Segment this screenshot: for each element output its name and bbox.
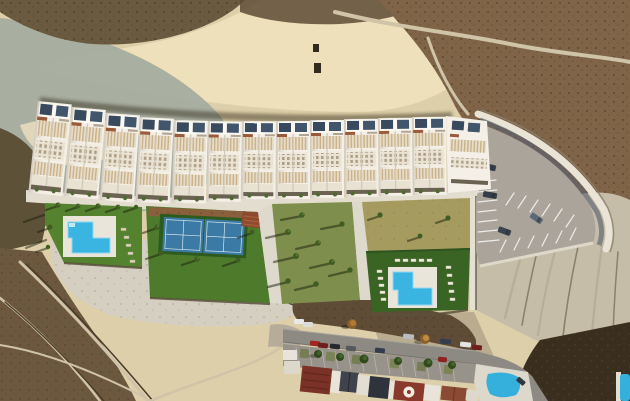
padel-courts-garden bbox=[143, 206, 270, 304]
townhouse-block-10 bbox=[344, 119, 379, 197]
right-garden-pool bbox=[362, 198, 470, 315]
townhouse-block-11 bbox=[378, 118, 413, 196]
townhouse-block-3 bbox=[100, 113, 140, 203]
right-edge-pool bbox=[616, 372, 630, 401]
boundary-wall bbox=[470, 196, 476, 310]
center-lawn bbox=[272, 202, 360, 304]
terrain-object-2 bbox=[314, 63, 321, 73]
aerial-photo bbox=[0, 0, 630, 401]
townhouse-block-6 bbox=[207, 121, 242, 202]
end-cap-block bbox=[446, 116, 491, 193]
townhouse-block-7 bbox=[241, 121, 276, 199]
aerial-photo-canvas bbox=[0, 0, 630, 401]
townhouse-block-4 bbox=[136, 117, 174, 204]
townhouse-block-12 bbox=[412, 117, 447, 195]
existing-pool-water bbox=[486, 373, 520, 398]
terrain-object-1 bbox=[313, 44, 319, 52]
left-pool-steps bbox=[69, 223, 75, 227]
dome-building bbox=[393, 380, 425, 401]
townhouse-block-5 bbox=[172, 120, 208, 204]
padel-courts bbox=[158, 214, 248, 259]
townhouse-block-8 bbox=[276, 121, 310, 199]
dry-grass-texture bbox=[362, 198, 470, 252]
townhouse-block-9 bbox=[310, 120, 344, 198]
